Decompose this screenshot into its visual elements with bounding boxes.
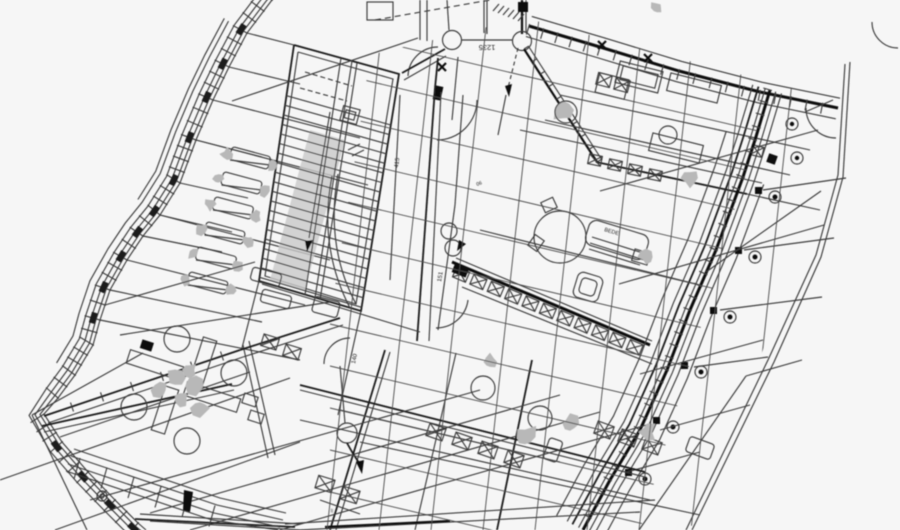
svg-text:1235: 1235	[479, 43, 496, 52]
